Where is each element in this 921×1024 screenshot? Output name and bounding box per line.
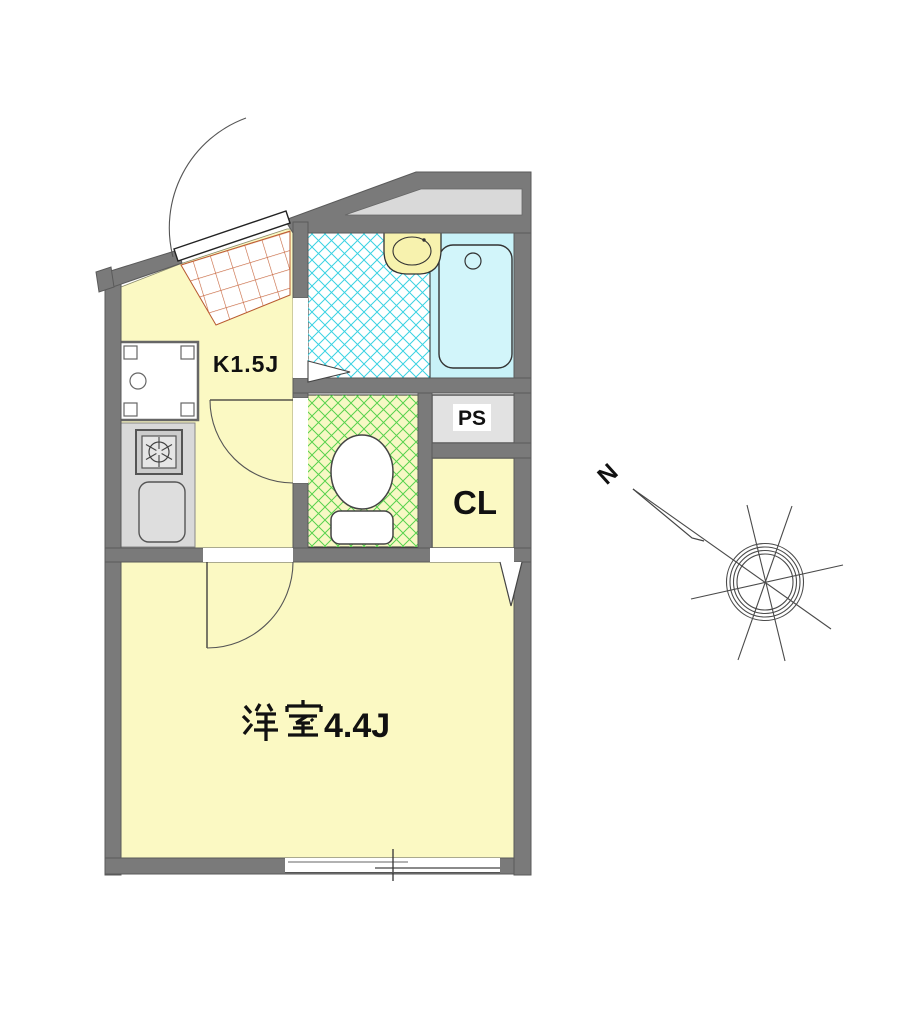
- bath-left-wall: [293, 222, 308, 298]
- compass-north-label: N: [593, 459, 624, 491]
- floor-plan-page: 洋室4.4J: [0, 0, 921, 1024]
- pan-corner-foot: [181, 346, 194, 359]
- pan-corner-foot: [124, 403, 137, 416]
- pan-drain-icon: [130, 373, 146, 389]
- compass-spoke: [691, 565, 843, 599]
- bath-bottom-wall: [293, 378, 531, 393]
- right-wall: [514, 172, 531, 875]
- toilet-door-opening: [293, 398, 308, 483]
- main-door-opening: [203, 548, 293, 562]
- kitchen-label: K1.5J: [213, 351, 279, 377]
- toilet-tank-icon: [331, 511, 393, 544]
- compass-spoke: [747, 505, 785, 661]
- main-room-size-label: 4.4J: [324, 707, 390, 745]
- pan-corner-foot: [181, 403, 194, 416]
- toilet-left-wall: [293, 393, 308, 398]
- closet-opening: [430, 548, 514, 562]
- ps-cl-divider-wall: [432, 443, 531, 458]
- bathroom-door-opening: [293, 298, 308, 378]
- pipe-space-label: PS: [458, 407, 486, 430]
- bathtub-icon: [439, 245, 512, 368]
- entrance-wall-stub: [96, 267, 114, 292]
- pan-corner-foot: [124, 346, 137, 359]
- floor-plan-drawing: K1.5J PS CL 4: [0, 0, 921, 1024]
- compass-rose: [633, 489, 843, 661]
- main-room-floor: [121, 562, 514, 858]
- kitchen-sink-icon: [139, 482, 185, 542]
- toilet-right-wall: [418, 393, 432, 562]
- compass-north-line: [633, 489, 831, 629]
- washbasin-icon: [384, 232, 441, 274]
- washbasin-tap-icon: [422, 238, 425, 241]
- toilet-bowl-icon: [331, 435, 393, 509]
- closet-label: CL: [453, 484, 497, 521]
- left-wall: [105, 276, 121, 875]
